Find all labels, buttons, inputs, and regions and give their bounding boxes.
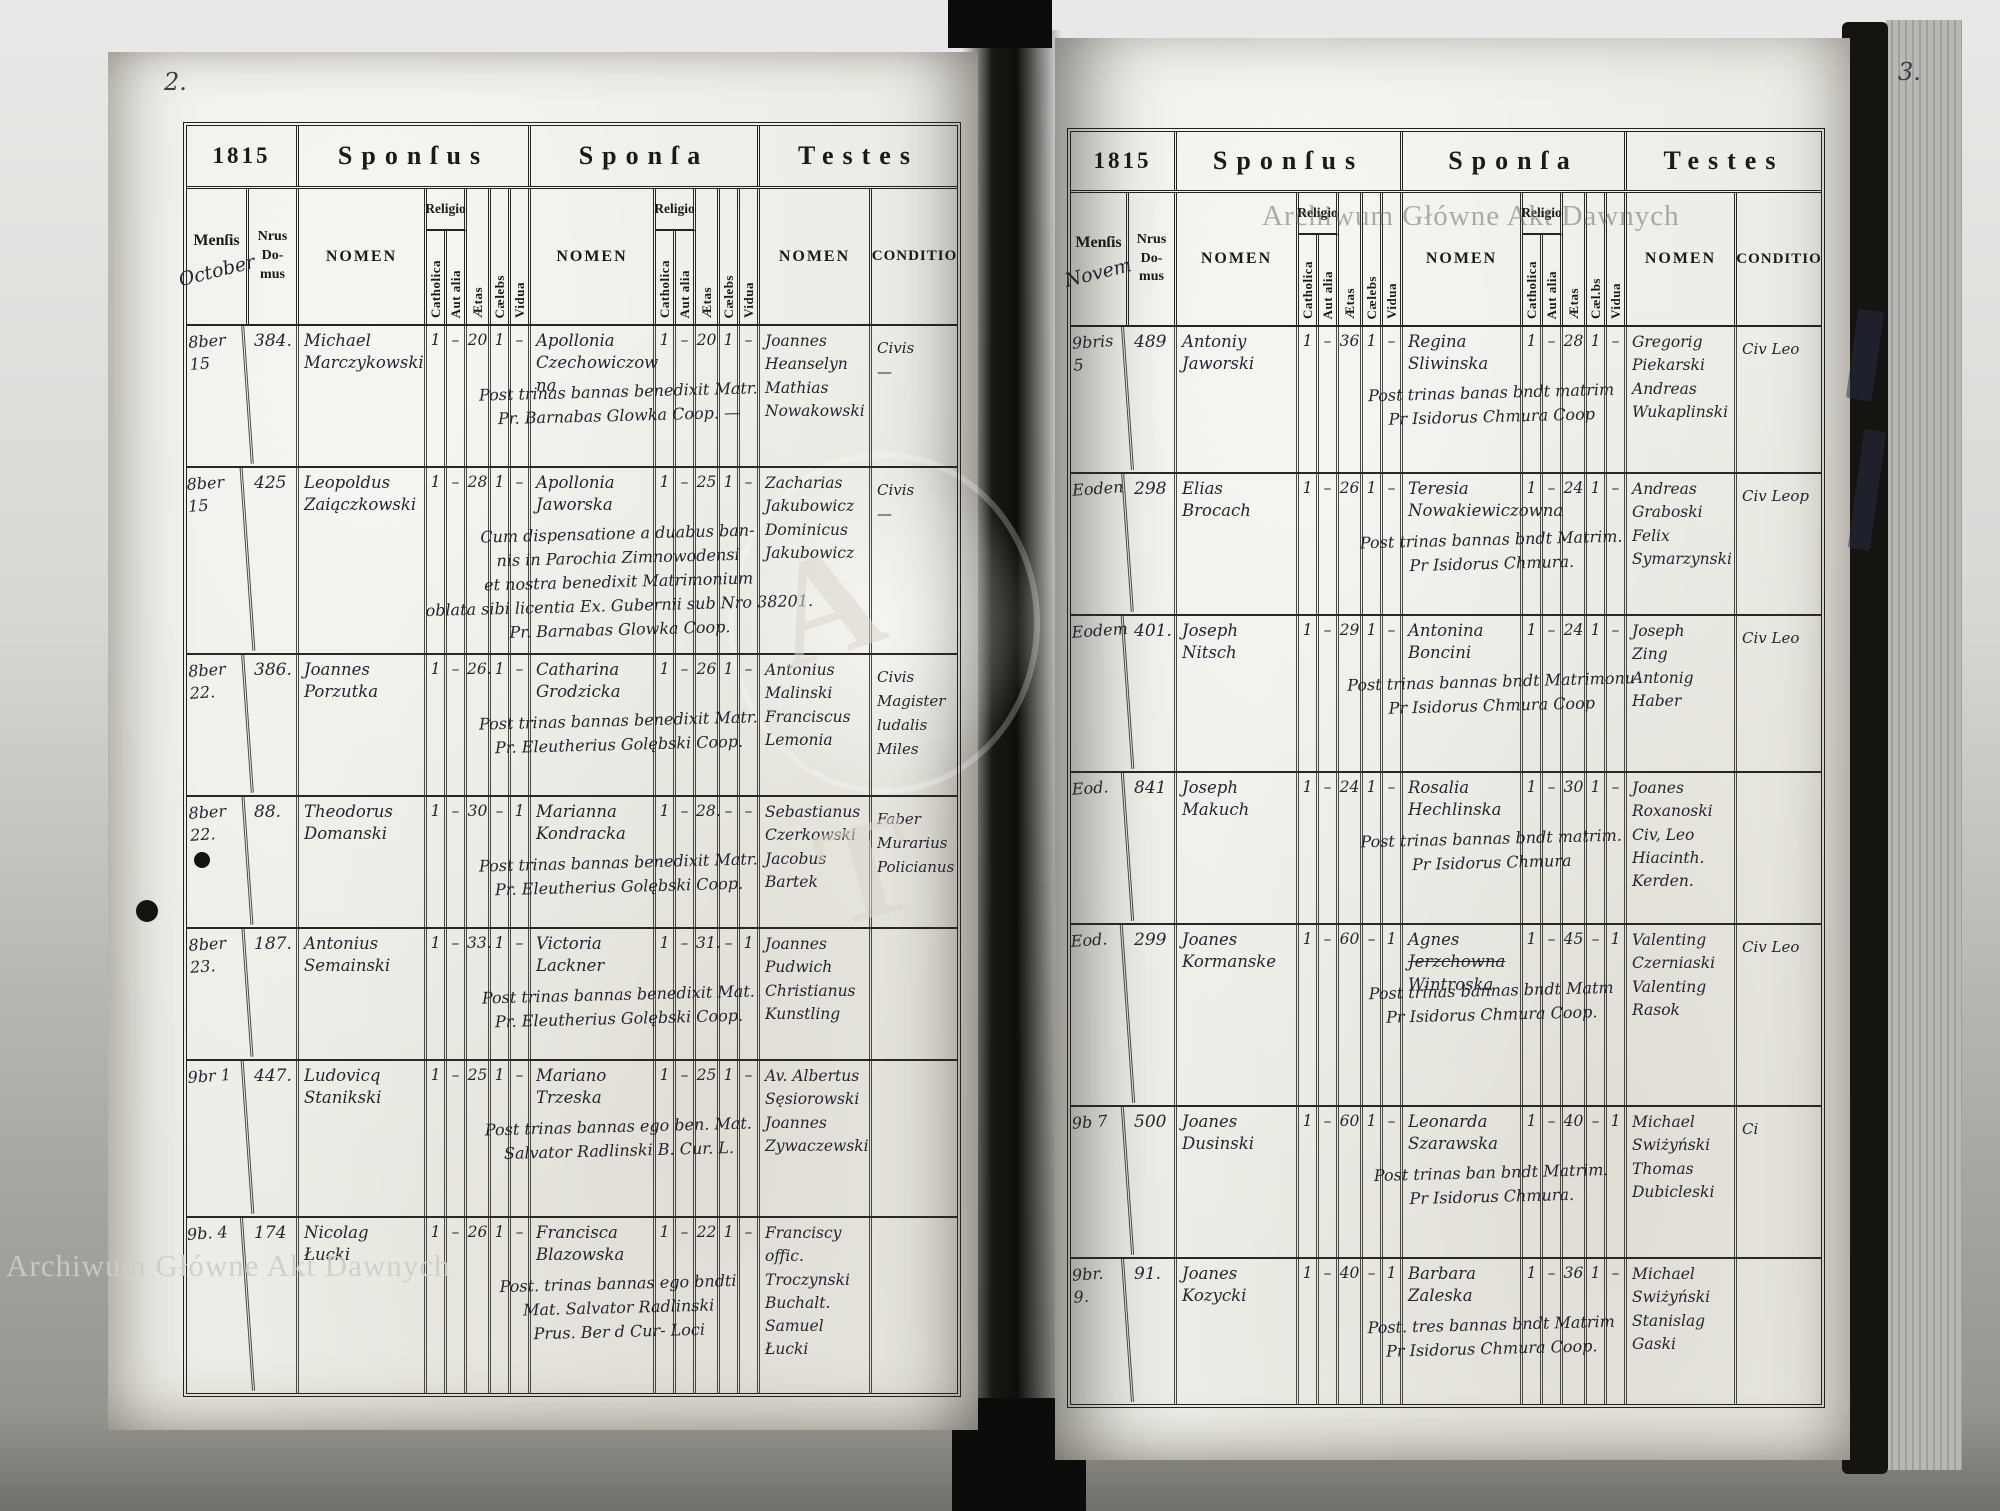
sponsa-name-cell: Leonarda Szarawska: [1403, 1107, 1523, 1257]
sponsus-caelebs-cell: 1: [1363, 616, 1383, 771]
aetas-header-sponsus: Ætas: [467, 189, 491, 324]
sponsa-catholica-cell: 1: [1523, 1259, 1543, 1404]
sponsa-name: Barbara Zaleska: [1408, 1264, 1476, 1305]
ink-blot: [136, 900, 158, 922]
sponsa-catholica-cell: 1: [1523, 474, 1543, 614]
sponsus-aetas-cell: 36: [1339, 327, 1363, 472]
sponsus-caelebs-cell: 1: [491, 655, 511, 795]
testes-cell: Franciscy offic. Troczynski Buchalt. Sam…: [760, 1218, 872, 1393]
sponsus-name-cell: Elias Brocach: [1177, 474, 1299, 614]
sponsa-aetas-cell: 40: [1563, 1107, 1587, 1257]
aut-alia-header-sponsa: Aut alia: [1543, 235, 1563, 325]
register-row: 9br. 9. 91. Joanes Kozycki 1 – 40 – 1 Ba…: [1071, 1259, 1821, 1404]
sponsa-name: Catharina Grodzicka: [536, 660, 621, 701]
left-page: 2. 1815 Sponſus Sponſa Testes Menſis Oct…: [108, 52, 978, 1430]
sponsus-caelebs-cell: –: [1363, 1259, 1383, 1404]
testes-cell: Andreas Graboski Felix Symarzynski: [1627, 474, 1737, 614]
house-number-cell: 386.: [249, 655, 299, 795]
sponsus-caelebs-cell: –: [491, 797, 511, 927]
register-row: 8ber 15 384. Michael Marczykowski 1 – 20…: [187, 326, 957, 468]
date-cell: 8ber 22.: [182, 653, 254, 797]
nrus-domus-label: Nrus Do- mus: [1137, 231, 1167, 288]
sponsus-aut-alia-cell: –: [1319, 1259, 1339, 1404]
sponsus-aut-alia-cell: –: [447, 468, 467, 653]
sponsus-catholica-cell: 1: [427, 326, 447, 466]
sponsa-vidua-cell: –: [740, 797, 760, 927]
sponsa-caelebs-cell: –: [720, 929, 740, 1059]
sponsa-aetas-cell: 20: [696, 326, 720, 466]
right-page: 1815 Sponſus Sponſa Testes Menſis Novem …: [1055, 38, 1850, 1460]
vidua-header-sponsus: Vidua: [511, 189, 531, 324]
sponsa-aetas-cell: 45: [1563, 925, 1587, 1105]
sponsa-caelebs-cell: 1: [720, 468, 740, 653]
sponsa-vidua-cell: –: [1607, 616, 1627, 771]
year-cell: 1815: [1071, 132, 1177, 190]
sponsus-name-cell: Nicolag Łucki: [299, 1218, 427, 1393]
house-number-cell: 298: [1129, 474, 1177, 614]
sponsus-vidua-cell: –: [511, 468, 531, 653]
sponsa-name: Victoria Lackner: [536, 934, 604, 975]
sponsus-catholica-cell: 1: [1299, 1107, 1319, 1257]
sponsus-name-cell: Joanes Kormanske: [1177, 925, 1299, 1105]
sponsa-catholica-cell: 1: [1523, 1107, 1543, 1257]
sponsa-header: Sponſa: [531, 126, 760, 186]
sponsus-caelebs-cell: –: [1363, 925, 1383, 1105]
house-number-cell: 174: [249, 1218, 299, 1393]
sponsus-caelebs-cell: 1: [1363, 1107, 1383, 1257]
conditio-cell: Civ Leop: [1737, 474, 1821, 614]
sponsa-aut-alia-cell: –: [1543, 1107, 1563, 1257]
sponsa-aetas-cell: 24: [1563, 474, 1587, 614]
table-header-sections: 1815 Sponſus Sponſa Testes: [187, 126, 957, 189]
sponsa-aetas-cell: 24: [1563, 616, 1587, 771]
sponsa-nomen-header: NOMEN: [1403, 193, 1523, 325]
sponsa-aut-alia-cell: –: [676, 929, 696, 1059]
sponsus-name-cell: Joannes Porzutka: [299, 655, 427, 795]
page-number-left: 2.: [164, 68, 187, 96]
sponsa-name-cell: Regina Sliwinska: [1403, 327, 1523, 472]
binding-tab-top: [948, 0, 1052, 48]
sponsus-vidua-cell: –: [1383, 327, 1403, 472]
house-number-cell: 299: [1129, 925, 1177, 1105]
date-cell: Eoden: [1066, 472, 1134, 616]
sponsus-aut-alia-cell: –: [1319, 1107, 1339, 1257]
register-row: 8ber 23. 187. Antonius Semainski 1 – 33.…: [187, 929, 957, 1061]
sponsa-aetas-cell: 26: [696, 655, 720, 795]
sponsus-aetas-cell: 26.: [467, 655, 491, 795]
sponsa-aetas-cell: 25: [696, 468, 720, 653]
sponsa-catholica-cell: 1: [1523, 327, 1543, 472]
sponsa-name-struck: Jerzchowna: [1408, 951, 1517, 973]
sponsa-vidua-cell: –: [740, 326, 760, 466]
sponsa-name-cell: Rosalia Hechlinska: [1403, 773, 1523, 923]
date-cell: 9br 1: [182, 1059, 255, 1218]
sponsa-name-cell: Mariano Trzeska: [531, 1061, 656, 1216]
register-row: 8ber 15 425 Leopoldus Zaiączkowski 1 – 2…: [187, 468, 957, 655]
date-cell: 9bris 5: [1066, 325, 1134, 474]
sponsa-header: Sponſa: [1403, 132, 1627, 190]
religio-header-sponsa: Religio: [1523, 193, 1563, 235]
sponsus-name-cell: Antonius Semainski: [299, 929, 427, 1059]
sponsus-aut-alia-cell: –: [1319, 474, 1339, 614]
sponsa-nomen-header: NOMEN: [531, 189, 656, 324]
sponsa-caelebs-cell: 1: [720, 326, 740, 466]
conditio-cell: Civ Leo: [1737, 616, 1821, 771]
conditio-cell: [872, 1218, 957, 1393]
conditio-cell: [1737, 773, 1821, 923]
sponsa-aut-alia-cell: –: [676, 655, 696, 795]
sponsa-name-cell: Victoria Lackner: [531, 929, 656, 1059]
register-row: Eod. 841 Joseph Makuch 1 – 24 1 – Rosali…: [1071, 773, 1821, 925]
sponsa-caelebs-cell: –: [1587, 925, 1607, 1105]
date-cell: 9b 7: [1066, 1105, 1134, 1259]
register-row: 9b 7 500 Joanes Dusinski 1 – 60 1 – Leon…: [1071, 1107, 1821, 1259]
sponsa-name: Leonarda Szarawska: [1408, 1112, 1498, 1153]
sponsa-aut-alia-cell: –: [1543, 1259, 1563, 1404]
register-row: 9b. 4 174 Nicolag Łucki 1 – 26 1 – Franc…: [187, 1218, 957, 1393]
month-script: Novem: [1063, 254, 1134, 292]
month-script: October: [176, 250, 257, 290]
house-number-cell: 489: [1129, 327, 1177, 472]
sponsa-aut-alia-cell: –: [1543, 616, 1563, 771]
sponsus-aetas-cell: 60: [1339, 1107, 1363, 1257]
mensis-label: Menſis: [193, 232, 239, 250]
sponsa-aut-alia-cell: –: [1543, 327, 1563, 472]
sponsus-vidua-cell: –: [511, 1061, 531, 1216]
date-cell: 8ber 23.: [183, 927, 254, 1061]
sponsa-aut-alia-cell: –: [676, 797, 696, 927]
nrus-domus-header-cell: Nrus Do- mus: [249, 189, 299, 324]
catholica-header-sponsus: Catholica: [427, 231, 447, 324]
testes-cell: Joseph Zing Antonig Haber: [1627, 616, 1737, 771]
sponsus-catholica-cell: 1: [1299, 616, 1319, 771]
sponsus-caelebs-cell: 1: [491, 468, 511, 653]
table-header-columns: Menſis October Nrus Do- mus NOMEN Religi…: [187, 189, 957, 326]
register-table-right: 1815 Sponſus Sponſa Testes Menſis Novem …: [1067, 128, 1825, 1408]
date-cell: 9br. 9.: [1066, 1257, 1134, 1406]
sponsa-name: Regina Sliwinska: [1408, 332, 1488, 373]
testes-cell: Valenting Czerniaski Valenting Rasok: [1627, 925, 1737, 1105]
testes-cell: Michael Swiżyński Stanislag Gaski: [1627, 1259, 1737, 1404]
testes-cell: Joannes Heanselyn Mathias Nowakowski: [760, 326, 872, 466]
nrus-domus-label: Nrus Do- mus: [258, 228, 288, 285]
sponsus-name-cell: Leopoldus Zaiączkowski: [299, 468, 427, 653]
sponsus-aut-alia-cell: –: [1319, 616, 1339, 771]
sponsa-vidua-cell: –: [1607, 773, 1627, 923]
sponsa-caelebs-cell: 1: [1587, 616, 1607, 771]
house-number-cell: 841: [1129, 773, 1177, 923]
caelebs-header-sponsus: Cælebs: [1363, 193, 1383, 325]
conditio-cell: [872, 929, 957, 1059]
sponsa-aetas-cell: 25: [696, 1061, 720, 1216]
vidua-header-sponsa: Vidua: [1607, 193, 1627, 325]
sponsa-name: Marianna Kondracka: [536, 802, 626, 843]
sponsus-aetas-cell: 28: [467, 468, 491, 653]
sponsus-caelebs-cell: 1: [1363, 327, 1383, 472]
page-number-right: 3.: [1898, 58, 1921, 86]
sponsa-catholica-cell: 1: [656, 1218, 676, 1393]
sponsus-catholica-cell: 1: [1299, 1259, 1319, 1404]
aetas-header-sponsa: Ætas: [1563, 193, 1587, 325]
conditio-cell: Civis —: [872, 326, 957, 466]
house-number-cell: 187.: [249, 929, 299, 1059]
sponsus-aut-alia-cell: –: [447, 1218, 467, 1393]
sponsa-catholica-cell: 1: [1523, 616, 1543, 771]
sponsa-name: Francisca Blazowska: [536, 1223, 624, 1264]
sponsa-catholica-cell: 1: [656, 655, 676, 795]
sponsus-catholica-cell: 1: [1299, 773, 1319, 923]
sponsus-aut-alia-cell: –: [447, 326, 467, 466]
house-number-cell: 401.: [1129, 616, 1177, 771]
aut-alia-header-sponsa: Aut alia: [676, 231, 696, 324]
conditio-header: CONDITIO: [1737, 193, 1821, 325]
aut-alia-header-sponsus: Aut alia: [1319, 235, 1339, 325]
sponsa-catholica-cell: 1: [656, 468, 676, 653]
sponsa-name: Mariano Trzeska: [536, 1066, 606, 1107]
table-body-left: 8ber 15 384. Michael Marczykowski 1 – 20…: [187, 326, 957, 1393]
register-row: Eodem 401. Joseph Nitsch 1 – 29 1 – Anto…: [1071, 616, 1821, 773]
sponsus-catholica-cell: 1: [427, 655, 447, 795]
date-cell: Eod.: [1065, 923, 1135, 1107]
conditio-cell: [1737, 1259, 1821, 1404]
sponsa-name-cell: Marianna Kondracka: [531, 797, 656, 927]
testes-cell: Joannes Pudwich Christianus Kunstling: [760, 929, 872, 1059]
sponsa-name-cell: Apollonia Jaworska: [531, 468, 656, 653]
sponsa-vidua-cell: 1: [1607, 1107, 1627, 1257]
sponsus-header: Sponſus: [299, 126, 531, 186]
sponsus-catholica-cell: 1: [427, 929, 447, 1059]
sponsa-name-cell: Francisca Blazowska: [531, 1218, 656, 1393]
sponsus-header: Sponſus: [1177, 132, 1403, 190]
conditio-cell: Civ Leo: [1737, 925, 1821, 1105]
sponsa-caelebs-cell: –: [1587, 1107, 1607, 1257]
aut-alia-header-sponsus: Aut alia: [447, 231, 467, 324]
date-cell: 8ber 22.: [183, 795, 254, 929]
sponsa-name-cell: Barbara Zaleska: [1403, 1259, 1523, 1404]
testes-header: Testes: [760, 126, 957, 186]
sponsus-aut-alia-cell: –: [447, 797, 467, 927]
sponsus-vidua-cell: –: [1383, 474, 1403, 614]
sponsa-caelebs-cell: 1: [1587, 773, 1607, 923]
aetas-header-sponsa: Ætas: [696, 189, 720, 324]
sponsus-aut-alia-cell: –: [447, 1061, 467, 1216]
sponsus-aut-alia-cell: –: [1319, 773, 1339, 923]
sponsa-aetas-cell: 36: [1563, 1259, 1587, 1404]
sponsa-vidua-cell: –: [740, 655, 760, 795]
sponsus-aetas-cell: 33.: [467, 929, 491, 1059]
sponsa-caelebs-cell: 1: [720, 655, 740, 795]
sponsus-aetas-cell: 40: [1339, 1259, 1363, 1404]
sponsa-name: Agnes: [1408, 930, 1459, 949]
sponsus-name-cell: Michael Marczykowski: [299, 326, 427, 466]
sponsus-aut-alia-cell: –: [447, 655, 467, 795]
testes-nomen-header: NOMEN: [1627, 193, 1737, 325]
sponsa-catholica-cell: 1: [656, 797, 676, 927]
sponsa-aut-alia-cell: –: [1543, 773, 1563, 923]
sponsus-catholica-cell: 1: [1299, 327, 1319, 472]
house-number-cell: 88.: [249, 797, 299, 927]
sponsus-vidua-cell: 1: [1383, 925, 1403, 1105]
sponsa-name-cell: Antonina Boncini: [1403, 616, 1523, 771]
sponsa-caelebs-cell: 1: [1587, 474, 1607, 614]
conditio-header: CONDITIO: [872, 189, 957, 324]
catholica-header-sponsus: Catholica: [1299, 235, 1319, 325]
religio-header-sponsus: Religio: [427, 189, 467, 231]
testes-cell: Antonius Malinski Franciscus Lemonia: [760, 655, 872, 795]
sponsa-vidua-cell: –: [740, 468, 760, 653]
sponsa-name: Apollonia Czechowiczow na: [536, 331, 658, 395]
sponsus-aetas-cell: 26: [1339, 474, 1363, 614]
sponsus-aetas-cell: 25: [467, 1061, 491, 1216]
sponsa-aut-alia-cell: –: [676, 1061, 696, 1216]
catholica-header-sponsa: Catholica: [1523, 235, 1543, 325]
vidua-header-sponsus: Vidua: [1383, 193, 1403, 325]
sponsa-vidua-cell: –: [740, 1061, 760, 1216]
sponsus-aetas-cell: 26: [467, 1218, 491, 1393]
sponsa-aut-alia-cell: –: [676, 326, 696, 466]
testes-cell: Av. Albertus Sęsiorowski Joannes Zywacze…: [760, 1061, 872, 1216]
house-number-cell: 91.: [1129, 1259, 1177, 1404]
caelebs-header-sponsa: Cæl.bs: [1587, 193, 1607, 325]
sponsa-aut-alia-cell: –: [676, 1218, 696, 1393]
sponsa-name: Antonina Boncini: [1408, 621, 1483, 662]
date-cell: 8ber 15: [181, 466, 256, 655]
vidua-header-sponsa: Vidua: [740, 189, 760, 324]
sponsus-aut-alia-cell: –: [1319, 327, 1339, 472]
sponsus-aut-alia-cell: –: [1319, 925, 1339, 1105]
mensis-header-cell: Menſis Novem: [1071, 193, 1129, 325]
sponsa-aetas-cell: 22: [696, 1218, 720, 1393]
testes-cell: Zacharias Jakubowicz Dominicus Jakubowic…: [760, 468, 872, 653]
date-cell: Eod.: [1066, 771, 1134, 925]
sponsa-name-cell: Teresia Nowakiewiczowna: [1403, 474, 1523, 614]
sponsus-name-cell: Antoniy Jaworski: [1177, 327, 1299, 472]
table-body-right: 9bris 5 489 Antoniy Jaworski 1 – 36 1 – …: [1071, 327, 1821, 1404]
register-table-left: 1815 Sponſus Sponſa Testes Menſis Octobe…: [183, 122, 961, 1397]
sponsus-catholica-cell: 1: [1299, 474, 1319, 614]
sponsus-aetas-cell: 30: [467, 797, 491, 927]
sponsa-vidua-cell: 1: [1607, 925, 1627, 1105]
sponsa-aut-alia-cell: –: [676, 468, 696, 653]
sponsus-caelebs-cell: 1: [491, 929, 511, 1059]
sponsus-name-cell: Ludovicq Stanikski: [299, 1061, 427, 1216]
sponsa-vidua-cell: 1: [740, 929, 760, 1059]
register-row: 9br 1 447. Ludovicq Stanikski 1 – 25 1 –…: [187, 1061, 957, 1218]
ink-blot: [194, 852, 210, 868]
sponsus-nomen-header: NOMEN: [299, 189, 427, 324]
sponsus-name-cell: Joseph Nitsch: [1177, 616, 1299, 771]
sponsa-aetas-cell: 31.: [696, 929, 720, 1059]
sponsa-name-cell: Apollonia Czechowiczow na: [531, 326, 656, 466]
sponsa-catholica-cell: 1: [1523, 925, 1543, 1105]
religio-header-sponsus: Religio: [1299, 193, 1339, 235]
sponsa-name-cell: Agnes Jerzchowna Wintroska: [1403, 925, 1523, 1105]
conditio-cell: Civis Magister ludalis Miles: [872, 655, 957, 795]
table-header-columns: Menſis Novem Nrus Do- mus NOMEN Religio …: [1071, 193, 1821, 327]
sponsus-aetas-cell: 20: [467, 326, 491, 466]
sponsa-aetas-cell: 28: [1563, 327, 1587, 472]
sponsa-catholica-cell: 1: [1523, 773, 1543, 923]
testes-cell: Sebastianus Czerkowski Jacobus Bartek: [760, 797, 872, 927]
sponsa-aetas-cell: 30: [1563, 773, 1587, 923]
year-cell: 1815: [187, 126, 299, 186]
conditio-cell: Faber Murarius Policianus: [872, 797, 957, 927]
testes-header: Testes: [1627, 132, 1821, 190]
sponsus-aetas-cell: 29: [1339, 616, 1363, 771]
date-cell: Eodem: [1066, 614, 1135, 773]
sponsa-aut-alia-cell: –: [1543, 474, 1563, 614]
date-cell: 8ber 15: [182, 324, 254, 468]
caelebs-header-sponsa: Cælebs: [720, 189, 740, 324]
nrus-domus-header-cell: Nrus Do- mus: [1129, 193, 1177, 325]
sponsa-catholica-cell: 1: [656, 929, 676, 1059]
sponsus-caelebs-cell: 1: [1363, 474, 1383, 614]
sponsus-catholica-cell: 1: [427, 468, 447, 653]
house-number-cell: 447.: [249, 1061, 299, 1216]
sponsa-caelebs-cell: 1: [720, 1218, 740, 1393]
sponsus-caelebs-cell: 1: [1363, 773, 1383, 923]
sponsa-catholica-cell: 1: [656, 1061, 676, 1216]
sponsus-caelebs-cell: 1: [491, 1218, 511, 1393]
sponsus-catholica-cell: 1: [427, 797, 447, 927]
sponsus-name-cell: Joseph Makuch: [1177, 773, 1299, 923]
table-header-sections: 1815 Sponſus Sponſa Testes: [1071, 132, 1821, 193]
mensis-label: Menſis: [1075, 234, 1121, 252]
sponsus-aetas-cell: 24: [1339, 773, 1363, 923]
conditio-cell: Civ Leo: [1737, 327, 1821, 472]
sponsus-vidua-cell: –: [511, 655, 531, 795]
sponsus-vidua-cell: 1: [511, 797, 531, 927]
sponsa-aut-alia-cell: –: [1543, 925, 1563, 1105]
house-number-cell: 500: [1129, 1107, 1177, 1257]
sponsa-vidua-cell: –: [1607, 1259, 1627, 1404]
sponsus-vidua-cell: 1: [1383, 1259, 1403, 1404]
mensis-header-cell: Menſis October: [187, 189, 249, 324]
register-row: 8ber 22. 386. Joannes Porzutka 1 – 26. 1…: [187, 655, 957, 797]
date-cell: 9b. 4: [181, 1216, 255, 1395]
sponsus-vidua-cell: –: [511, 326, 531, 466]
testes-cell: Gregorig Piekarski Andreas Wukaplinski: [1627, 327, 1737, 472]
testes-cell: Michael Swiżyński Thomas Dubicleski: [1627, 1107, 1737, 1257]
sponsa-caelebs-cell: 1: [1587, 327, 1607, 472]
sponsa-name: Apollonia Jaworska: [536, 473, 615, 514]
religio-header-sponsa: Religio: [656, 189, 696, 231]
sponsus-vidua-cell: –: [511, 929, 531, 1059]
caelebs-header-sponsus: Cælebs: [491, 189, 511, 324]
conditio-cell: [872, 1061, 957, 1216]
sponsus-vidua-cell: –: [1383, 1107, 1403, 1257]
sponsus-vidua-cell: –: [1383, 773, 1403, 923]
sponsa-caelebs-cell: –: [720, 797, 740, 927]
conditio-cell: Civis —: [872, 468, 957, 653]
sponsa-vidua-cell: –: [1607, 327, 1627, 472]
page-stack-edge: [1886, 20, 1962, 1470]
sponsa-catholica-cell: 1: [656, 326, 676, 466]
register-row: 9bris 5 489 Antoniy Jaworski 1 – 36 1 – …: [1071, 327, 1821, 474]
register-row: 8ber 22. 88. Theodorus Domanski 1 – 30 –…: [187, 797, 957, 929]
testes-cell: Joanes Roxanoski Civ, Leo Hiacinth. Kerd…: [1627, 773, 1737, 923]
sponsa-vidua-cell: –: [1607, 474, 1627, 614]
sponsa-vidua-cell: –: [740, 1218, 760, 1393]
sponsus-name-cell: Joanes Dusinski: [1177, 1107, 1299, 1257]
sponsus-catholica-cell: 1: [427, 1218, 447, 1393]
sponsus-vidua-cell: –: [1383, 616, 1403, 771]
sponsus-catholica-cell: 1: [427, 1061, 447, 1216]
sponsa-caelebs-cell: 1: [720, 1061, 740, 1216]
sponsus-nomen-header: NOMEN: [1177, 193, 1299, 325]
testes-nomen-header: NOMEN: [760, 189, 872, 324]
sponsus-aetas-cell: 60: [1339, 925, 1363, 1105]
